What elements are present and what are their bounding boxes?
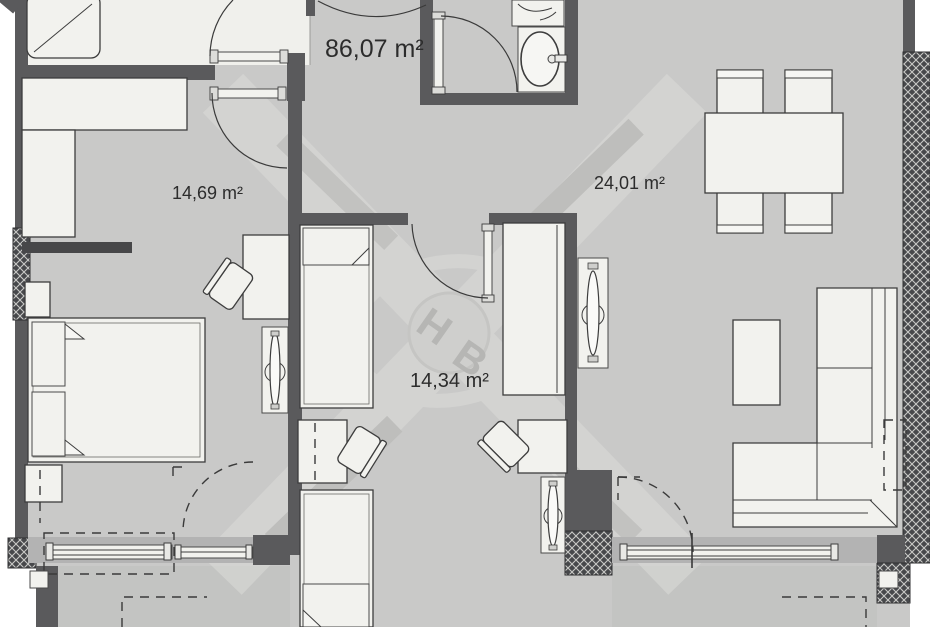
- outside-top-right: [915, 0, 930, 52]
- wall-window-pier-left: [253, 535, 290, 565]
- dining-chair-back: [785, 225, 832, 233]
- coffee-table: [733, 320, 780, 405]
- wall-right-exterior-top: [903, 0, 915, 55]
- dining-chair-back: [785, 70, 832, 78]
- floor-plan-page: H B: [0, 0, 930, 627]
- wall-ledge: [22, 242, 132, 253]
- sink: [518, 27, 567, 92]
- single-bed-top: [300, 225, 373, 408]
- nightstand-top: [25, 282, 50, 317]
- toilet: [512, 0, 564, 26]
- window-cap: [164, 543, 171, 560]
- single-bed-bottom: [300, 490, 373, 627]
- window-cap: [175, 545, 181, 559]
- window-right-frame: [620, 546, 838, 559]
- wall-right-hatched: [903, 52, 930, 563]
- window-cap: [46, 543, 53, 560]
- double-bed: [28, 318, 205, 462]
- wall-centerroom-top-left: [302, 213, 408, 225]
- shower: [27, 0, 100, 58]
- label-total-area: 86,07 m²: [325, 35, 424, 63]
- balcony-door-left-frame: [46, 545, 172, 559]
- desk-bedroom-center-left: [298, 420, 347, 483]
- dining-chair-back: [717, 225, 763, 233]
- balcony-column-right: [879, 571, 898, 588]
- wall-bathroom-bottom: [433, 93, 578, 105]
- window-cap: [246, 545, 252, 559]
- window-cap: [831, 544, 838, 560]
- dining-table: [705, 113, 843, 193]
- tv-unit-bedroom-center: [541, 477, 565, 553]
- sink-tap: [555, 55, 567, 62]
- floor-plan: H B: [0, 0, 930, 627]
- nightstand-bottom: [25, 465, 62, 502]
- wall-entrance-stub: [306, 0, 315, 16]
- wall-hatched-pier-center: [565, 531, 612, 575]
- pillow: [32, 322, 65, 386]
- outside-bottom-left: [0, 563, 10, 627]
- window-cap: [620, 544, 627, 560]
- label-bedroom-center: 14,34 m²: [410, 370, 489, 392]
- wardrobe-center: [503, 223, 565, 395]
- dining-chair-back: [717, 70, 763, 78]
- tv-unit-living: [578, 258, 608, 368]
- tv-unit-bedroom-left: [262, 327, 288, 413]
- pillow: [32, 392, 65, 456]
- label-bedroom-left: 14,69 m²: [172, 183, 243, 203]
- balcony-column-left: [30, 571, 48, 588]
- wall-pier-bottom-center: [565, 470, 612, 533]
- wall-pier-bottom-right: [877, 535, 905, 563]
- wall-bathroom-right: [565, 0, 578, 105]
- label-living-dining: 24,01 m²: [594, 173, 665, 193]
